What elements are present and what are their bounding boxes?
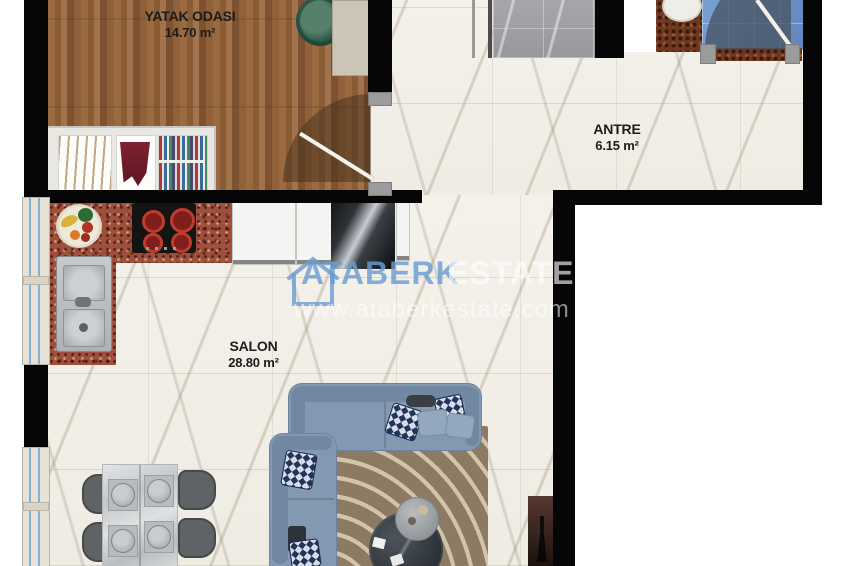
entry-label: ANTRE 6.15 m² (558, 121, 676, 154)
floor-plan: YATAK ODASI 14.70 m² ANTRE 6.15 m² SALON… (0, 0, 850, 566)
bedroom-door-jamb-bottom (368, 182, 392, 196)
wall-left-middle (24, 360, 48, 450)
wardrobe-hangers (58, 135, 112, 191)
bathroom-doorway (624, 0, 658, 52)
sofa-arm-top (274, 436, 332, 450)
bedroom-dresser (332, 0, 370, 76)
shower-glass-line (472, 0, 475, 58)
chevron-pillow (288, 538, 322, 566)
burner (143, 233, 163, 253)
plate (111, 483, 135, 507)
wall-left-upper (24, 0, 48, 198)
chevron-pillow (280, 449, 318, 490)
wall-right-outer (803, 0, 822, 205)
living-label: SALON 28.80 m² (196, 338, 311, 371)
orange (70, 230, 80, 240)
burner (170, 208, 195, 233)
bedroom-area: 14.70 m² (110, 25, 270, 41)
wardrobe-rail (159, 160, 205, 163)
wardrobe-red-clothes (116, 135, 156, 191)
sofa-seat-seam (288, 498, 334, 500)
bedroom-label: YATAK ODASI 14.70 m² (110, 8, 270, 41)
window-mullion (23, 502, 49, 511)
apple (82, 222, 93, 233)
bedroom-name: YATAK ODASI (110, 8, 270, 25)
wardrobe-colorful-clothes (158, 135, 208, 191)
living-area: 28.80 m² (196, 355, 311, 371)
watermark-brand: ATABERK (301, 255, 460, 292)
bathroom-door-jamb-left (700, 44, 716, 64)
living-name: SALON (196, 338, 311, 355)
cooktop (132, 203, 196, 253)
burner (142, 210, 165, 233)
bananas (59, 212, 80, 229)
dining-table (102, 464, 178, 566)
sofa-tray (406, 395, 436, 407)
dining-chair (178, 470, 216, 510)
plate (147, 525, 171, 549)
wardrobe (46, 126, 216, 200)
entry-name: ANTRE (558, 121, 676, 138)
shower-glass-panel (488, 0, 492, 58)
window-kitchen (22, 197, 50, 365)
fruit-bowl (56, 204, 102, 248)
wall-bedroom-bottom (24, 190, 422, 203)
broccoli (78, 208, 93, 222)
kitchen-sink (56, 256, 112, 352)
watermark: ATABERK ESTATE www.ataberkestate.com (284, 246, 584, 330)
shower-area (493, 0, 595, 58)
decor-bowl (418, 505, 428, 515)
sink-drain (79, 323, 88, 332)
wall-bedroom-right (368, 0, 392, 94)
red-garment (120, 142, 150, 186)
window-living (22, 447, 50, 566)
cooktop-controls (146, 247, 182, 250)
wall-shower-right (595, 0, 624, 58)
sofa-pillow (444, 412, 475, 440)
plate (147, 479, 171, 503)
dining-chair (178, 518, 216, 558)
tv-console (528, 496, 556, 566)
window-mullion (23, 276, 49, 285)
entry-area: 6.15 m² (558, 138, 676, 154)
bedroom-door-jamb-top (368, 92, 392, 106)
watermark-brand-secondary: ESTATE (447, 255, 574, 292)
sink-basin-top (63, 265, 105, 301)
watermark-website: www.ataberkestate.com (294, 296, 570, 324)
vase (537, 528, 547, 562)
bathroom-door-swing (705, 0, 791, 49)
side-table (395, 497, 439, 541)
wall-entry-bottom (553, 190, 822, 205)
bathroom-door-jamb-right (785, 44, 800, 64)
faucet (75, 297, 91, 307)
plate (111, 529, 135, 553)
vase-neck (540, 516, 544, 530)
decor-cup (408, 517, 416, 525)
table-seam (139, 465, 141, 566)
apple-2 (81, 233, 90, 242)
